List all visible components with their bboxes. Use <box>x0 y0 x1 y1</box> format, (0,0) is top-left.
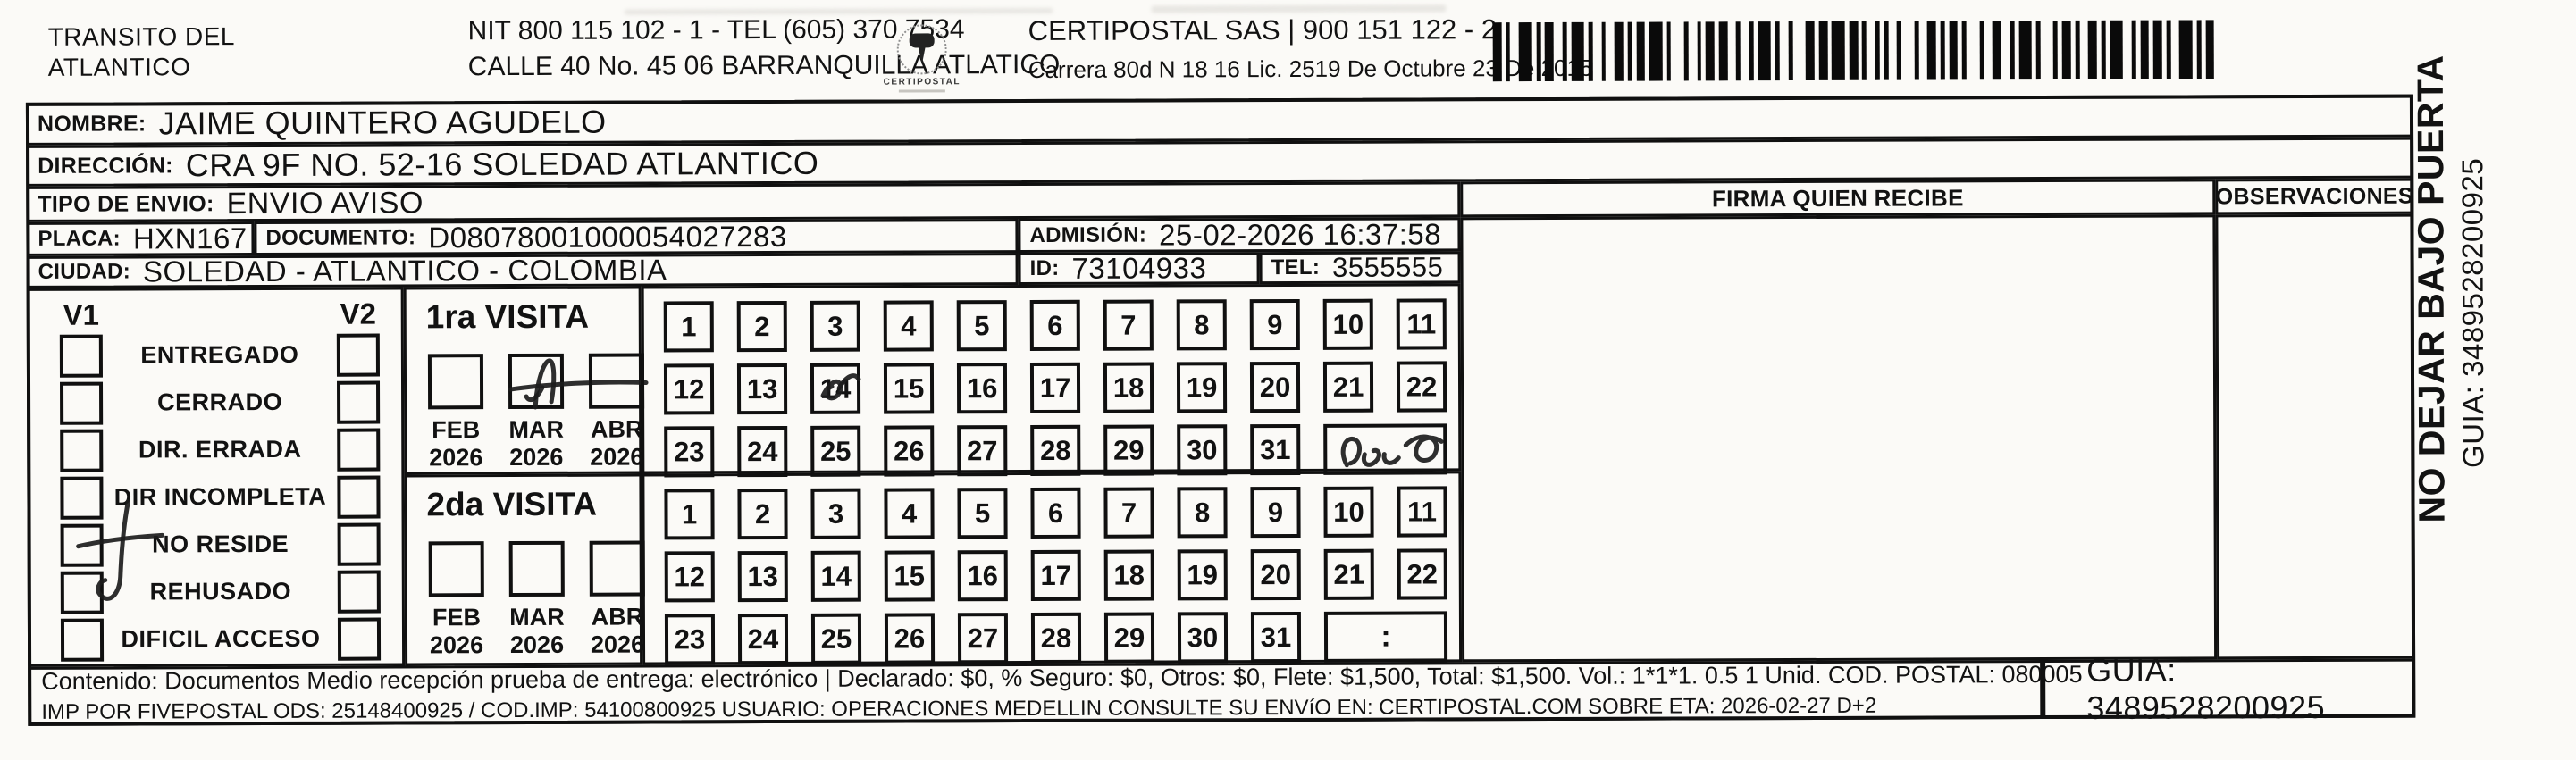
day-18-visit2: 18 <box>1104 550 1154 601</box>
side-guia-text: GUIA: 3489528200925 <box>2455 103 2491 522</box>
day-5-visit1: 5 <box>957 300 1007 351</box>
firma-header-text: FIRMA QUIEN RECIBE <box>1712 184 1964 213</box>
day-12-visit1: 12 <box>664 363 714 414</box>
day-17-visit1: 17 <box>1030 363 1080 413</box>
checkbox-v1-rehusado <box>61 571 104 614</box>
admision-value: 25-02-2026 16:37:58 <box>1159 217 1441 252</box>
status-rows: ENTREGADOCERRADODIR. ERRADADIR INCOMPLET… <box>29 330 402 663</box>
checkbox-v2-dir-errada <box>337 428 380 471</box>
footer-line2: IMP POR FIVEPOSTAL ODS: 25148400925 / CO… <box>41 694 1876 725</box>
footer-line1: Contenido: Documentos Medio recepción pr… <box>41 661 2082 696</box>
nombre-label: NOMBRE: <box>38 111 147 137</box>
day-18-visit1: 18 <box>1103 363 1154 413</box>
company-name-line2: ATLANTICO <box>48 52 235 83</box>
day-30-visit1: 30 <box>1177 424 1227 475</box>
month-label-visit2-feb: FEB2026 <box>429 604 484 659</box>
documento-cell: DOCUMENTO: D08078001000054027283 <box>254 219 1018 255</box>
day-9-visit1: 9 <box>1250 299 1300 350</box>
day-4-visit2: 4 <box>884 488 934 539</box>
day-11-visit2: 11 <box>1397 486 1447 537</box>
ciudad-label: CIUDAD: <box>38 260 131 285</box>
day-15-visit1: 15 <box>884 363 934 413</box>
no-dejar-bajo-puerta-text: NO DEJAR BAJO PUERTA <box>2410 103 2454 522</box>
checkbox-v1-cerrado <box>60 381 103 424</box>
signpost-icon <box>906 30 938 68</box>
day-16-visit1: 16 <box>957 363 1007 413</box>
day-22-visit2: 22 <box>1397 548 1447 599</box>
day-2-visit1: 2 <box>737 301 787 352</box>
v2-header: V2 <box>335 297 382 331</box>
day-6-visit2: 6 <box>1030 488 1080 539</box>
status-label-entregado: ENTREGADO <box>105 341 335 370</box>
status-row-dir-errada: DIR. ERRADA <box>29 425 401 473</box>
day-15-visit2: 15 <box>885 550 935 601</box>
barcode <box>1493 20 2224 81</box>
day-26-visit1: 26 <box>884 425 934 476</box>
observaciones-header-text: OBSERVACIONES <box>2216 183 2413 210</box>
checkbox-v2-dificil-acceso <box>338 617 381 660</box>
day-31-visit2: 31 <box>1251 612 1301 663</box>
company-name-line1: TRANSITO DEL <box>48 21 235 53</box>
direccion-value: CRA 9F NO. 52-16 SOLEDAD ATLANTICO <box>186 145 819 184</box>
status-label-dir-errada: DIR. ERRADA <box>105 436 335 464</box>
month-checkbox-visit2-abr <box>590 541 645 597</box>
logo-subline <box>899 89 945 92</box>
company-name: TRANSITO DEL ATLANTICO <box>48 21 236 83</box>
tipo-envio-row: TIPO DE ENVIO: ENVIO AVISO <box>26 181 1460 222</box>
v1-header: V1 <box>58 298 105 332</box>
logo-caption: CERTIPOSTAL <box>873 77 971 87</box>
first-visit-title: 1ra VISITA <box>426 298 589 337</box>
nit-line: NIT 800 115 102 - 1 - TEL (605) 370 7534 <box>468 12 1061 49</box>
day-21-visit2: 21 <box>1324 549 1374 600</box>
day-25-visit2: 25 <box>811 614 861 664</box>
status-label-dir-incompleta: DIR INCOMPLETA <box>105 483 335 512</box>
day-1-visit1: 1 <box>664 301 714 352</box>
day-28-visit2: 28 <box>1031 613 1081 664</box>
first-visit-month-panel: 1ra VISITA FEB2026MAR2026ABR2026 <box>404 287 642 475</box>
footer-guia-text: GUIA: 3489528200925 <box>2086 651 2412 727</box>
scanned-delivery-form: TRANSITO DEL ATLANTICO NIT 800 115 102 -… <box>0 0 2576 760</box>
day-26-visit2: 26 <box>885 613 935 664</box>
day-11-visit1: 11 <box>1397 298 1447 349</box>
day-7-visit1: 7 <box>1103 300 1154 351</box>
second-visit-month-panel: 2da VISITA FEB2026MAR2026ABR2026 <box>404 474 642 666</box>
id-cell: ID: 73104933 <box>1019 252 1260 285</box>
footer-guia-box: GUIA: 3489528200925 <box>2043 659 2415 719</box>
status-row-dir-incompleta: DIR INCOMPLETA <box>29 472 401 521</box>
firma-area <box>1460 214 2217 662</box>
status-label-no-reside: NO RESIDE <box>105 530 336 559</box>
status-row-no-reside: NO RESIDE <box>30 520 402 568</box>
visit-columns-header: V1 V2 <box>29 289 401 331</box>
second-visit-time-box: : <box>1324 611 1447 662</box>
day-19-visit1: 19 <box>1177 362 1227 413</box>
second-visit-day-grid: 1234567891011121314151617181920212223242… <box>642 471 1462 664</box>
day-5-visit2: 5 <box>957 488 1007 539</box>
status-row-entregado: ENTREGADO <box>29 330 401 379</box>
nombre-value: JAIME QUINTERO AGUDELO <box>158 104 606 143</box>
checkbox-v2-no-reside <box>338 522 381 565</box>
day-27-visit1: 27 <box>957 425 1007 476</box>
first-visit-note-box <box>1323 423 1447 474</box>
status-row-rehusado: REHUSADO <box>30 567 402 615</box>
day-8-visit1: 8 <box>1177 299 1227 350</box>
placa-label: PLACA: <box>38 227 121 252</box>
side-note: NO DEJAR BAJO PUERTA GUIA: 3489528200925 <box>2410 103 2510 522</box>
checkbox-v2-cerrado <box>337 380 380 423</box>
direccion-label: DIRECCIÓN: <box>38 153 173 180</box>
checkbox-v2-entregado <box>337 333 380 376</box>
second-visit-month-boxes <box>429 541 645 597</box>
certipostal-logo-icon <box>897 24 947 74</box>
day-17-visit2: 17 <box>1031 550 1081 601</box>
admision-label: ADMISIÓN: <box>1029 223 1146 248</box>
day-6-visit1: 6 <box>1030 300 1080 351</box>
day-24-visit2: 24 <box>738 614 788 664</box>
day-2-visit2: 2 <box>737 489 787 539</box>
day-7-visit2: 7 <box>1103 488 1154 539</box>
day-4-visit1: 4 <box>884 300 934 351</box>
day-19-visit2: 19 <box>1178 549 1228 600</box>
day-14-visit1: 14 <box>810 363 860 414</box>
checkbox-v1-dir-incompleta <box>60 476 103 519</box>
footer-info: Contenido: Documentos Medio recepción pr… <box>28 660 2043 726</box>
day-25-visit1: 25 <box>810 426 860 477</box>
month-label-visit1-abr: ABR2026 <box>589 416 644 472</box>
observaciones-header: OBSERVACIONES <box>2215 179 2413 215</box>
day-22-visit1: 22 <box>1397 361 1447 412</box>
day-29-visit1: 29 <box>1103 425 1154 476</box>
checkbox-v1-dificil-acceso <box>61 618 104 661</box>
month-checkbox-visit1-abr <box>589 354 644 409</box>
day-23-visit1: 23 <box>664 426 714 477</box>
day-16-visit2: 16 <box>958 550 1008 601</box>
checkbox-v2-rehusado <box>338 570 381 613</box>
scan-streak <box>1152 4 1447 13</box>
month-label-visit1-feb: FEB2026 <box>428 416 483 472</box>
day-10-visit2: 10 <box>1323 487 1373 538</box>
day-28-visit1: 28 <box>1030 425 1080 476</box>
month-checkbox-visit1-mar <box>508 354 564 409</box>
tel-cell: TEL: 3555555 <box>1260 251 1461 284</box>
tel-label: TEL: <box>1271 255 1321 280</box>
first-visit-month-labels: FEB2026MAR2026ABR2026 <box>428 416 644 472</box>
status-row-dificil-acceso: DIFICIL ACCESO <box>30 614 402 663</box>
documento-value: D08078001000054027283 <box>428 220 787 255</box>
day-9-visit2: 9 <box>1250 487 1300 538</box>
month-checkbox-visit2-feb <box>429 541 484 597</box>
day-24-visit1: 24 <box>737 426 787 477</box>
status-label-rehusado: REHUSADO <box>105 578 336 606</box>
checkbox-v1-dir-errada <box>60 429 103 472</box>
month-label-visit2-abr: ABR2026 <box>590 604 645 659</box>
day-3-visit2: 3 <box>810 489 860 539</box>
observaciones-area <box>2215 214 2415 660</box>
id-label: ID: <box>1030 256 1060 281</box>
checkbox-v1-entregado <box>60 334 103 377</box>
placa-value: HXN167 <box>133 221 248 255</box>
day-23-visit2: 23 <box>665 614 715 664</box>
address-line: CALLE 40 No. 45 06 BARRANQUILLA ATLATICO <box>468 47 1061 85</box>
status-label-dificil-acceso: DIFICIL ACCESO <box>105 625 336 654</box>
day-13-visit1: 13 <box>737 363 787 414</box>
month-checkbox-visit1-feb <box>428 354 483 409</box>
day-13-visit2: 13 <box>738 551 788 602</box>
tipo-envio-value: ENVIO AVISO <box>227 186 424 221</box>
ciudad-value: SOLEDAD - ATLANTICO - COLOMBIA <box>143 253 667 288</box>
day-27-visit2: 27 <box>958 613 1008 664</box>
status-row-cerrado: CERRADO <box>29 378 401 426</box>
day-30-visit2: 30 <box>1178 612 1228 663</box>
tipo-envio-label: TIPO DE ENVIO: <box>38 191 214 218</box>
checkbox-v1-no-reside <box>61 523 104 566</box>
day-21-visit1: 21 <box>1323 362 1373 413</box>
placa-cell: PLACA: HXN167 <box>26 221 254 256</box>
second-visit-month-labels: FEB2026MAR2026ABR2026 <box>429 604 645 660</box>
tel-value: 3555555 <box>1332 251 1443 283</box>
first-visit-month-boxes <box>428 354 644 410</box>
day-31-visit1: 31 <box>1250 424 1300 475</box>
day-12-visit2: 12 <box>665 551 715 602</box>
company-contact: NIT 800 115 102 - 1 - TEL (605) 370 7534… <box>468 12 1061 85</box>
day-3-visit1: 3 <box>810 301 860 352</box>
id-value: 73104933 <box>1071 251 1206 286</box>
day-8-visit2: 8 <box>1177 487 1227 538</box>
day-29-visit2: 29 <box>1104 613 1154 664</box>
month-label-visit1-mar: MAR2026 <box>508 416 564 472</box>
status-panel: V1 V2 ENTREGADOCERRADODIR. ERRADADIR INC… <box>27 287 405 666</box>
month-label-visit2-mar: MAR2026 <box>509 604 565 659</box>
firma-header: FIRMA QUIEN RECIBE <box>1460 179 2215 217</box>
day-20-visit2: 20 <box>1251 549 1301 600</box>
checkbox-v2-dir-incompleta <box>337 475 380 518</box>
day-20-visit1: 20 <box>1250 362 1300 413</box>
certipostal-logo: CERTIPOSTAL <box>873 24 971 92</box>
month-checkbox-visit2-mar <box>509 541 565 597</box>
status-label-cerrado: CERRADO <box>105 388 335 417</box>
handwritten-mark-day <box>810 360 871 417</box>
day-14-visit2: 14 <box>811 551 861 602</box>
first-visit-day-grid: 1234567891011121314 15161718192021222324… <box>642 283 1462 473</box>
day-10-visit1: 10 <box>1323 299 1373 350</box>
day-1-visit2: 1 <box>664 489 714 539</box>
admision-cell: ADMISIÓN: 25-02-2026 16:37:58 <box>1018 217 1460 253</box>
ciudad-cell: CIUDAD: SOLEDAD - ATLANTICO - COLOMBIA <box>27 253 1019 288</box>
documento-label: DOCUMENTO: <box>265 225 415 251</box>
second-visit-title: 2da VISITA <box>426 486 597 524</box>
